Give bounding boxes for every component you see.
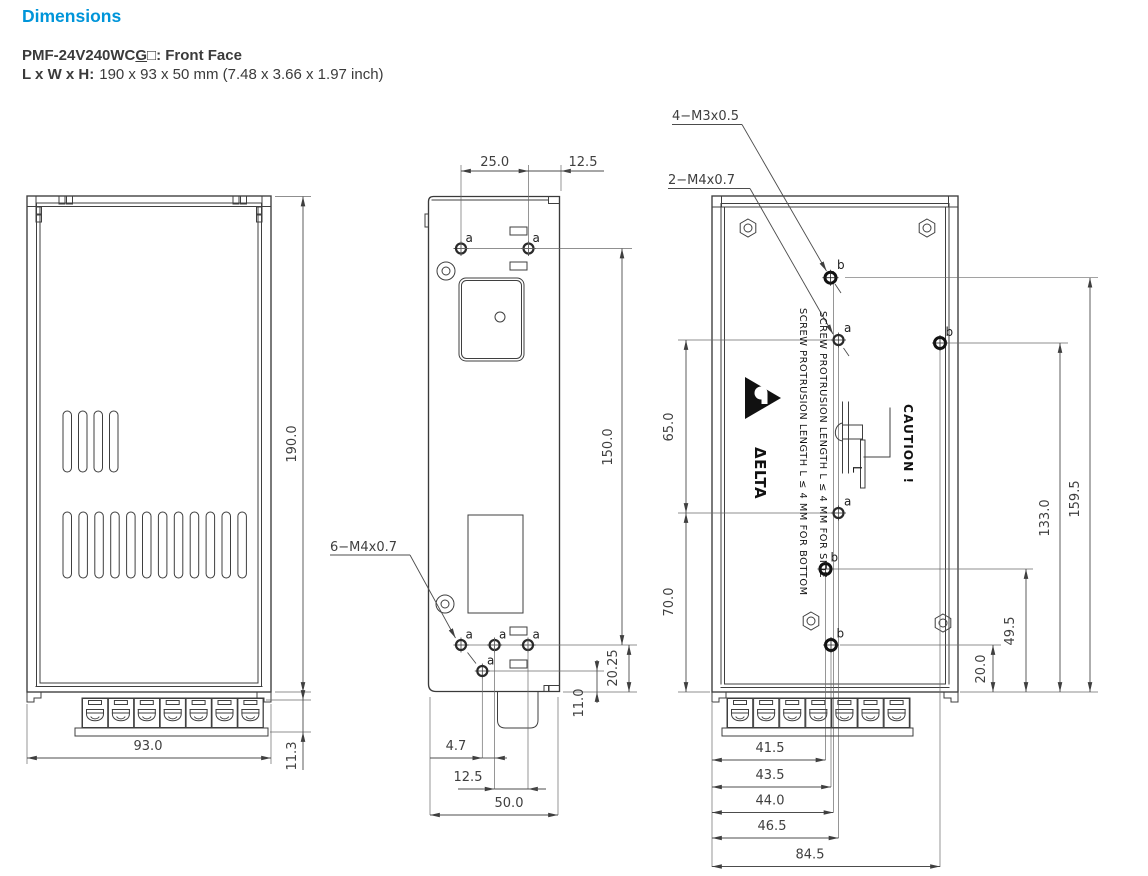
vent-row-upper [63, 411, 118, 472]
svg-text:11.0: 11.0 [572, 689, 587, 718]
foot [712, 692, 726, 702]
dim-front-length: 190.0 [275, 197, 311, 693]
svg-text:133.0: 133.0 [1038, 499, 1053, 536]
dim-side-hole-edge: 12.5 [529, 155, 605, 171]
svg-text:150.0: 150.0 [601, 428, 616, 465]
bottom-connector [498, 692, 539, 728]
thread-callout-m3: 4−M3x0.5 [672, 109, 841, 293]
svg-text:84.5: 84.5 [796, 848, 825, 863]
svg-text:b: b [831, 551, 839, 565]
dim-side-bottom-offset: 20.25 [563, 645, 637, 692]
svg-text:a: a [844, 321, 851, 335]
knockout-panel [459, 278, 524, 361]
svg-text:190.0: 190.0 [285, 425, 300, 462]
svg-text:25.0: 25.0 [480, 155, 509, 170]
svg-text:20.0: 20.0 [974, 655, 989, 684]
svg-text:L: L [850, 466, 864, 473]
terminal-block [75, 698, 268, 736]
hex-nut [740, 219, 756, 237]
dim-side-hole-span: 150.0 [601, 249, 622, 646]
svg-text:2−M4x0.7: 2−M4x0.7 [668, 173, 735, 188]
side-body [429, 197, 560, 692]
svg-text:159.5: 159.5 [1068, 480, 1083, 517]
svg-text:65.0: 65.0 [662, 413, 677, 442]
hex-nut [803, 612, 819, 630]
dim-side-hole-offset: 11.0 [572, 660, 597, 717]
svg-text:a: a [487, 654, 494, 668]
foot [27, 692, 41, 702]
note-side: SCREW PROTRUSION LENGTH L ≤ 4 MM FOR SID… [817, 311, 828, 578]
svg-text:49.5: 49.5 [1003, 617, 1018, 646]
svg-text:a: a [533, 231, 540, 245]
dim-side-hole-pitch: 25.0 [461, 155, 561, 254]
svg-text:70.0: 70.0 [662, 588, 677, 617]
screw-hole-b [823, 270, 839, 286]
foot [257, 692, 271, 702]
back-view: b b b b a a 4−M3x0.5 2−M4x0.7 [662, 109, 1098, 867]
hex-nut [919, 219, 935, 237]
svg-text:a: a [844, 495, 851, 509]
dim-front-terminal-height: 11.3 [266, 689, 311, 770]
foot [944, 692, 958, 702]
svg-text:b: b [946, 325, 954, 339]
cutout-panel [468, 515, 523, 613]
svg-text:50.0: 50.0 [495, 796, 524, 811]
datasheet-page: Dimensions PMF-24V240WCG□: Front Face L … [0, 0, 1148, 876]
delta-logo: ΔELTA [745, 377, 781, 499]
svg-text:4−M3x0.5: 4−M3x0.5 [672, 109, 739, 124]
front-view: 190.0 11.3 93.0 [27, 196, 311, 770]
dim-back-base: 41.5 43.5 44.0 46.5 84.5 [712, 741, 940, 867]
back-body [712, 196, 958, 692]
svg-text:20.25: 20.25 [606, 649, 621, 686]
caution-screw-icon: L [835, 402, 890, 488]
svg-text:4.7: 4.7 [446, 739, 467, 754]
svg-text:a: a [466, 231, 473, 245]
dim-back-right: 20.0 49.5 133.0 159.5 [974, 278, 1090, 692]
vent-row-lower [63, 512, 246, 578]
svg-text:b: b [837, 258, 845, 272]
terminal-block [722, 698, 913, 736]
svg-text:44.0: 44.0 [756, 794, 785, 809]
svg-text:93.0: 93.0 [134, 739, 163, 754]
dimension-drawing: 190.0 11.3 93.0 [0, 0, 1148, 876]
svg-text:b: b [837, 627, 845, 641]
front-body [27, 196, 271, 692]
note-bottom: SCREW PROTRUSION LENGTH L ≤ 4 MM FOR BOT… [797, 308, 808, 596]
svg-text:43.5: 43.5 [756, 768, 785, 783]
svg-text:11.3: 11.3 [285, 742, 300, 771]
svg-text:a: a [499, 628, 506, 642]
caution-text: CAUTION ! [901, 404, 915, 484]
dim-back-upper: 65.0 [662, 340, 686, 513]
svg-text:ΔELTA: ΔELTA [751, 447, 769, 499]
dim-back-lower: 70.0 [662, 513, 686, 692]
svg-text:6−M4x0.7: 6−M4x0.7 [330, 540, 397, 555]
svg-text:a: a [533, 628, 540, 642]
svg-text:a: a [466, 628, 473, 642]
hex-nut [935, 614, 951, 632]
side-view: a a a a a a 6−M4x0.7 25.0 [330, 155, 637, 815]
svg-text:12.5: 12.5 [454, 770, 483, 785]
svg-text:41.5: 41.5 [756, 741, 785, 756]
svg-text:46.5: 46.5 [758, 819, 787, 834]
svg-text:12.5: 12.5 [569, 155, 598, 170]
